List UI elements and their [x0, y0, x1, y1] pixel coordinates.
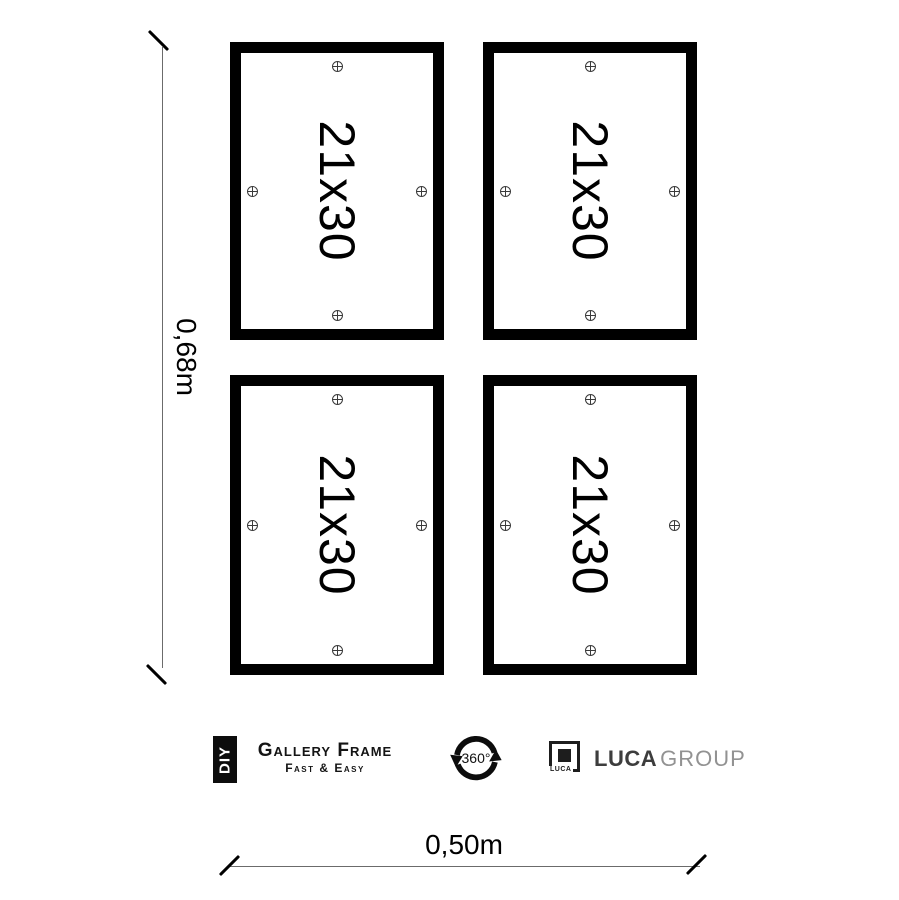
mount-point-icon	[585, 310, 596, 321]
mount-point-icon	[585, 394, 596, 405]
diy-badge-label: DIY	[217, 745, 234, 773]
mount-point-icon	[585, 61, 596, 72]
mount-point-icon	[669, 186, 680, 197]
frame-top-right: 21x30	[483, 42, 697, 340]
rotation-360-icon: 360°	[449, 731, 503, 785]
brand-subtitle: Fast & Easy	[243, 761, 407, 775]
luca-logo-text: LUCA	[549, 766, 573, 773]
width-dimension-line	[228, 866, 700, 867]
luca-logo: LUCA	[549, 741, 587, 779]
frame-bottom-left: 21x30	[230, 375, 444, 675]
brand-title: Gallery Frame	[243, 740, 407, 761]
frame-size-label: 21x30	[308, 120, 366, 261]
mount-point-icon	[332, 645, 343, 656]
height-dimension-line	[162, 47, 163, 668]
brand-logo: Gallery Frame Fast & Easy	[243, 740, 407, 775]
mount-point-icon	[500, 186, 511, 197]
frame-layout-diagram: 0,68m 0,50m 21x30 21x30 21x30 21x30 DIY	[0, 0, 899, 900]
mount-point-icon	[332, 61, 343, 72]
mount-point-icon	[247, 186, 258, 197]
mount-point-icon	[416, 186, 427, 197]
company-wordmark: LUCAGROUP	[594, 746, 746, 772]
mount-point-icon	[669, 520, 680, 531]
height-dimension-label: 0,68m	[170, 318, 202, 396]
frame-top-left: 21x30	[230, 42, 444, 340]
mount-point-icon	[332, 394, 343, 405]
width-dimension-label: 0,50m	[425, 829, 503, 861]
dimension-tick-icon	[148, 30, 169, 51]
mount-point-icon	[585, 645, 596, 656]
luca-logo-square-icon	[558, 749, 571, 762]
dimension-tick-icon	[686, 854, 707, 875]
mount-point-icon	[247, 520, 258, 531]
rotation-360-label: 360°	[462, 750, 491, 766]
frame-size-label: 21x30	[561, 120, 619, 261]
frame-size-label: 21x30	[308, 454, 366, 595]
frame-size-label: 21x30	[561, 454, 619, 595]
mount-point-icon	[416, 520, 427, 531]
frame-bottom-right: 21x30	[483, 375, 697, 675]
company-suffix: GROUP	[660, 746, 746, 771]
dimension-tick-icon	[146, 664, 167, 685]
mount-point-icon	[332, 310, 343, 321]
company-name: LUCA	[594, 746, 657, 771]
mount-point-icon	[500, 520, 511, 531]
diy-badge: DIY	[213, 736, 237, 783]
